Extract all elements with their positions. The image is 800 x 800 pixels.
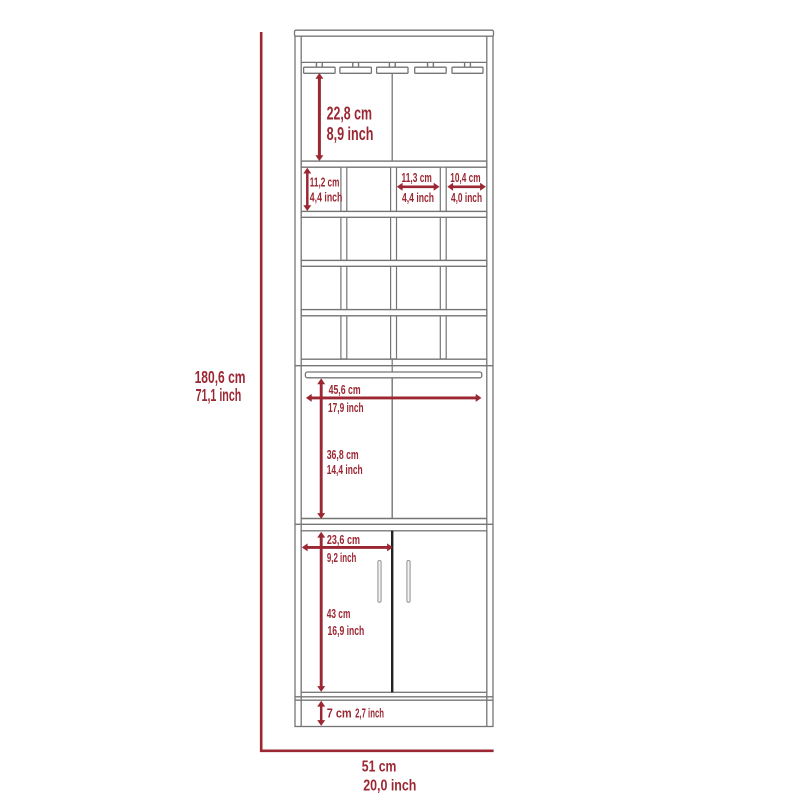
svg-text:71,1 inch: 71,1 inch	[196, 385, 242, 405]
svg-text:180,6 cm: 180,6 cm	[195, 367, 246, 387]
svg-text:10,4 cm: 10,4 cm	[450, 171, 480, 185]
svg-text:2,7 inch: 2,7 inch	[355, 706, 384, 720]
svg-text:8,9 inch: 8,9 inch	[327, 124, 374, 144]
svg-text:7 cm: 7 cm	[327, 706, 352, 720]
svg-text:11,3 cm: 11,3 cm	[402, 171, 432, 185]
svg-text:17,9 inch: 17,9 inch	[328, 400, 364, 415]
svg-text:16,9 inch: 16,9 inch	[328, 623, 365, 638]
svg-text:11,2 cm: 11,2 cm	[310, 175, 340, 189]
svg-text:4,0 inch: 4,0 inch	[451, 191, 482, 205]
svg-text:36,8 cm: 36,8 cm	[327, 447, 359, 462]
svg-text:14,4 inch: 14,4 inch	[327, 462, 363, 477]
svg-text:45,6 cm: 45,6 cm	[329, 382, 361, 397]
svg-text:43 cm: 43 cm	[327, 606, 351, 621]
svg-text:4,4 inch: 4,4 inch	[310, 191, 343, 205]
svg-text:23,6 cm: 23,6 cm	[327, 532, 360, 547]
svg-text:4,4 inch: 4,4 inch	[402, 191, 434, 205]
svg-text:20,0 inch: 20,0 inch	[363, 778, 416, 795]
svg-text:9,2 inch: 9,2 inch	[327, 550, 356, 565]
svg-text:51 cm: 51 cm	[362, 759, 397, 776]
svg-text:22,8 cm: 22,8 cm	[327, 104, 372, 124]
